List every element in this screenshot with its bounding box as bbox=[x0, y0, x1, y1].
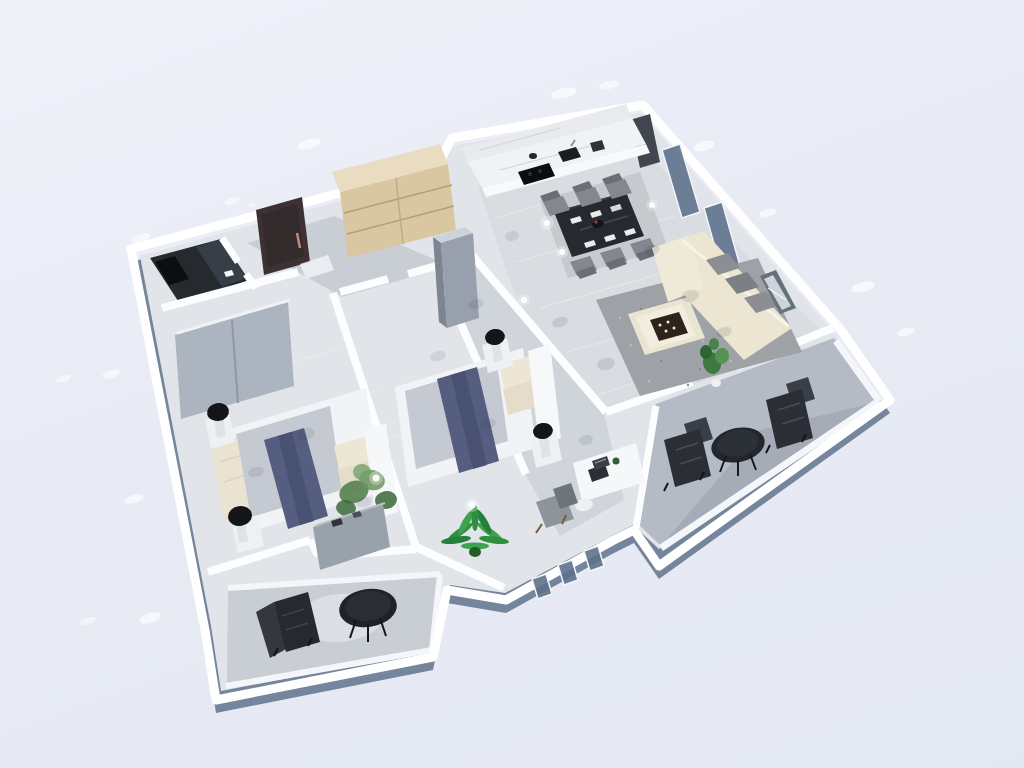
coffee-tray-dot bbox=[667, 321, 670, 324]
ceiling-light-dot bbox=[469, 502, 476, 509]
ambient-light-ellipse bbox=[54, 373, 71, 384]
ambient-light-ellipse bbox=[758, 207, 777, 219]
bedroom2-palm-pot[interactable] bbox=[469, 547, 481, 557]
living-plant-pot[interactable] bbox=[711, 379, 721, 387]
coffee-tray-dot bbox=[673, 327, 676, 330]
dining-centerpiece-accent bbox=[595, 221, 598, 224]
ambient-light-ellipse bbox=[598, 79, 619, 91]
kitchen-burner-1 bbox=[528, 172, 532, 176]
ceiling-light-dot bbox=[544, 220, 550, 226]
ambient-light-ellipse bbox=[296, 136, 322, 152]
rug-speckle bbox=[660, 360, 662, 362]
ambient-light-ellipse bbox=[223, 195, 240, 206]
ambient-light-ellipse bbox=[138, 610, 162, 626]
rug-speckle bbox=[640, 308, 642, 310]
coffee-tray-dot bbox=[665, 330, 668, 333]
rug-speckle bbox=[619, 317, 621, 319]
ambient-light-ellipse bbox=[79, 615, 96, 626]
ceiling-light-dot bbox=[373, 475, 380, 482]
ambient-light-ellipse bbox=[248, 202, 257, 208]
floor-plan-canvas bbox=[0, 0, 1024, 768]
ambient-light-ellipse bbox=[550, 85, 578, 100]
rug-speckle bbox=[730, 360, 732, 362]
ceiling-light-dot bbox=[521, 297, 527, 303]
rug-speckle bbox=[687, 384, 689, 386]
ceiling-light-dot bbox=[649, 202, 655, 208]
desk-plant bbox=[613, 458, 620, 465]
bedroom1-plant-leaf-4 bbox=[353, 464, 371, 480]
rug-speckle bbox=[702, 340, 704, 342]
ceiling-light-dot bbox=[559, 249, 565, 255]
ambient-light-ellipse bbox=[692, 138, 716, 153]
ambient-light-ellipse bbox=[123, 492, 144, 505]
ambient-light-ellipse bbox=[896, 326, 915, 338]
rug-speckle bbox=[699, 368, 701, 370]
bedroom2-tall-cabinet-front[interactable] bbox=[441, 233, 479, 328]
kitchen-kettle bbox=[529, 153, 537, 159]
ambient-light-ellipse bbox=[101, 368, 121, 381]
coffee-tray-dot bbox=[659, 324, 662, 327]
kitchen-burner-2 bbox=[538, 169, 542, 173]
floor-plan-3d-render bbox=[0, 0, 1024, 768]
ambient-light-ellipse bbox=[850, 279, 876, 295]
rug-speckle bbox=[630, 344, 632, 346]
living-plant-leaf-4 bbox=[709, 338, 719, 350]
rug-speckle bbox=[648, 380, 650, 382]
